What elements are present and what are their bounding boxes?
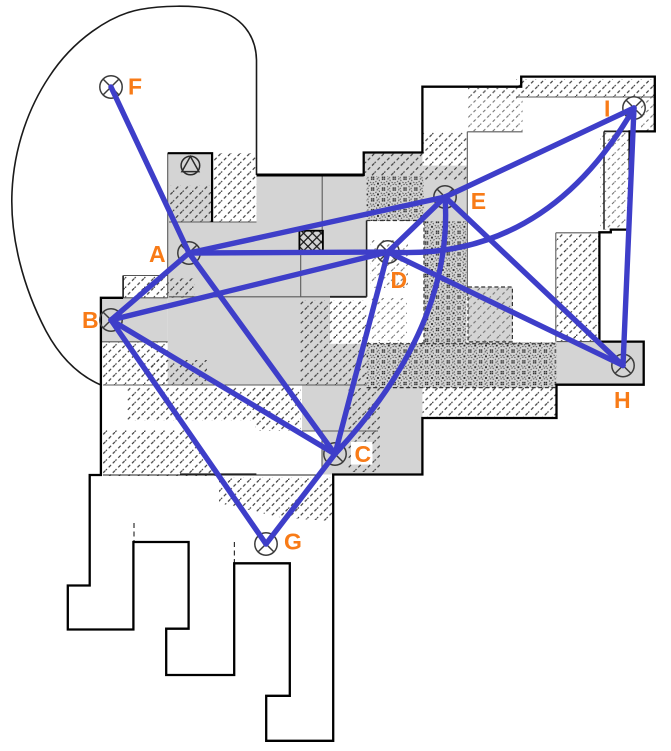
svg-text:A: A (149, 241, 166, 267)
svg-text:B: B (82, 307, 99, 333)
svg-text:F: F (128, 74, 142, 100)
svg-text:G: G (284, 529, 302, 555)
svg-text:I: I (604, 96, 610, 122)
svg-text:D: D (391, 267, 408, 293)
svg-text:H: H (614, 387, 631, 413)
svg-text:E: E (471, 188, 486, 214)
svg-text:C: C (355, 441, 372, 467)
